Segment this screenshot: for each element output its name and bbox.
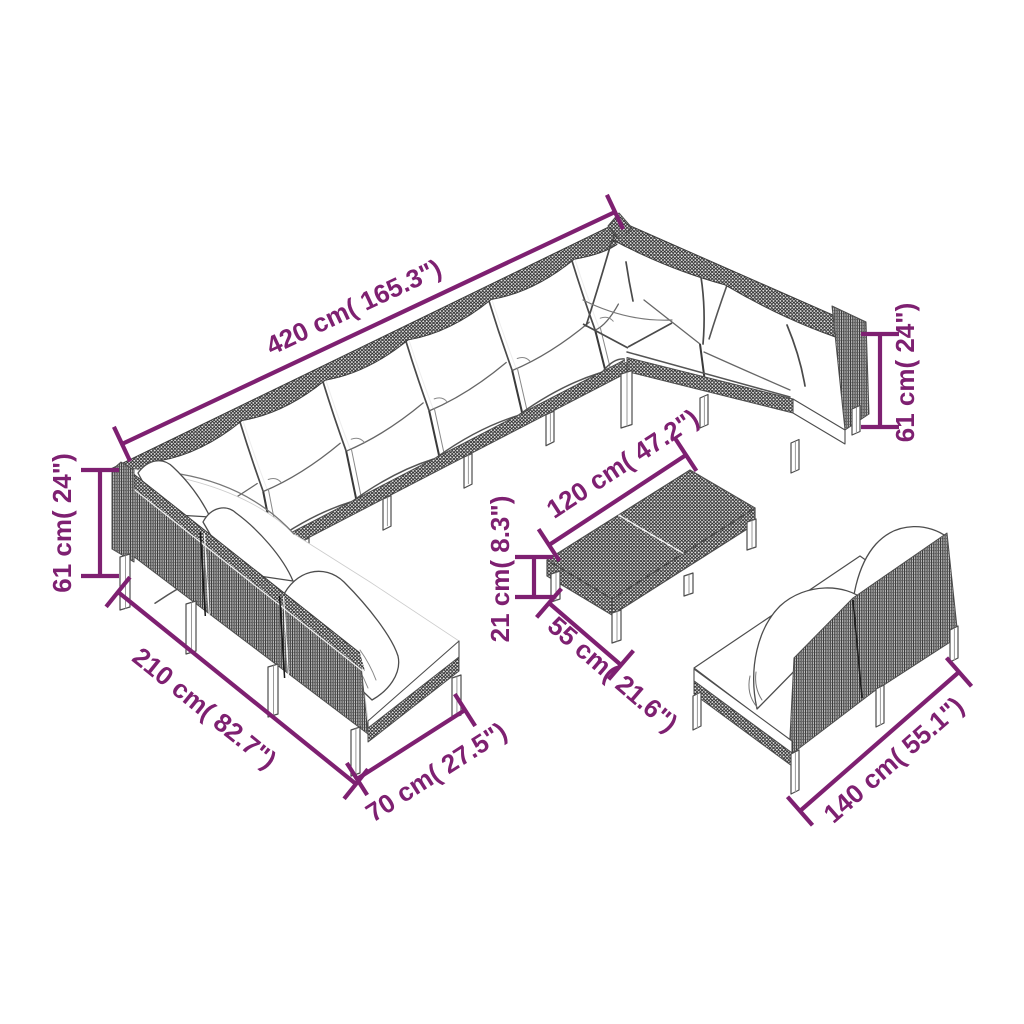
svg-text:61 cm( 24"): 61 cm( 24") xyxy=(890,303,920,443)
svg-text:21 cm( 8.3"): 21 cm( 8.3") xyxy=(485,496,515,643)
svg-text:61 cm( 24"): 61 cm( 24") xyxy=(47,453,77,593)
